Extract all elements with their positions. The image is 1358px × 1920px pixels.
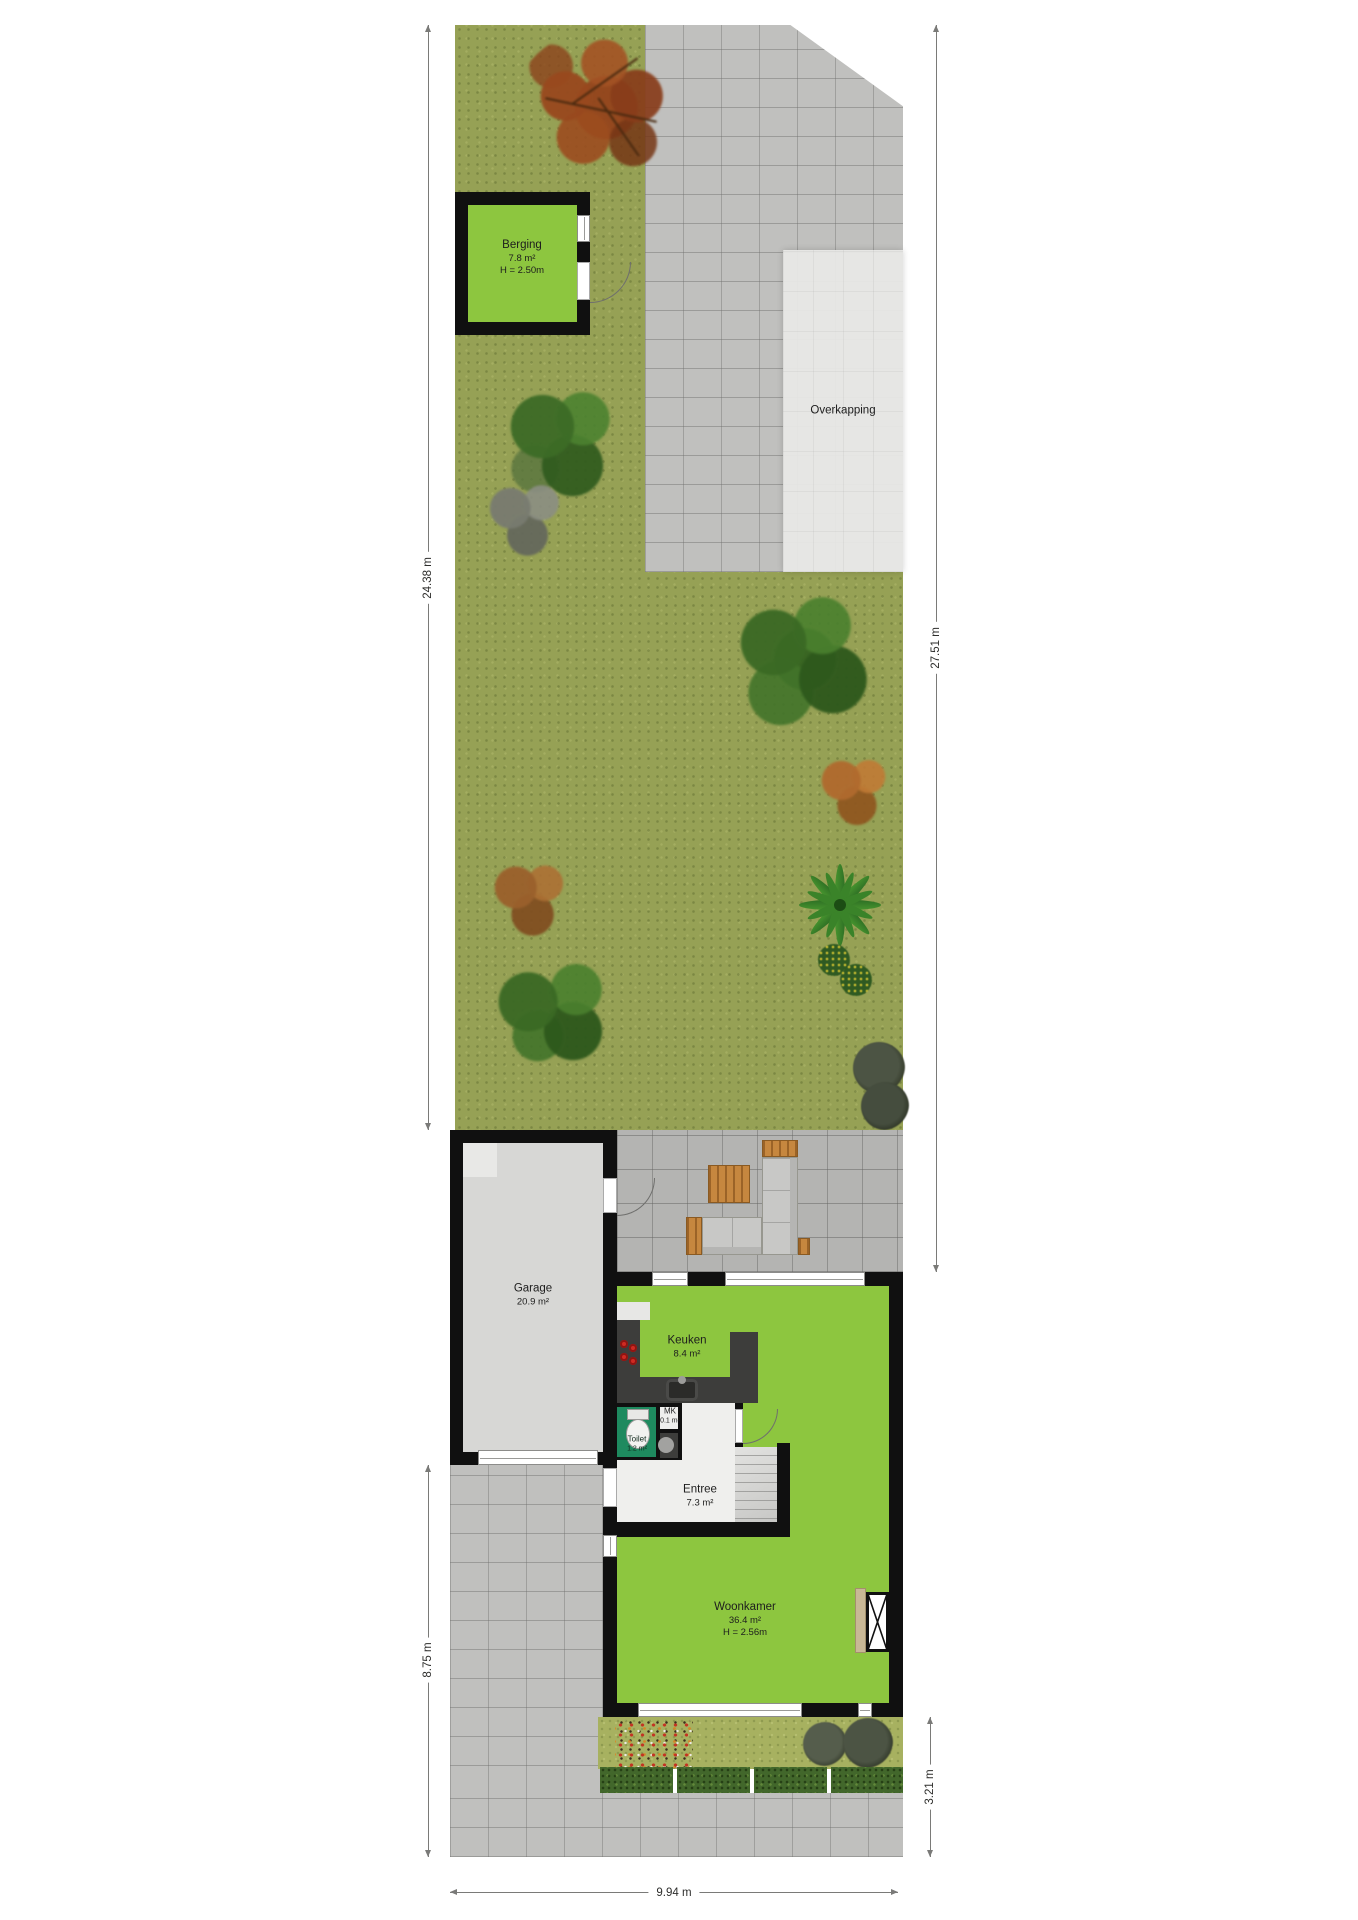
chimney-x-icon [866,1592,889,1652]
garden-bush-large [718,582,892,750]
mk-label: MK 0.1 m² [660,1406,680,1425]
berging-name: Berging [500,238,544,253]
keuken-name: Keuken [667,1333,706,1348]
garage-mat [463,1143,497,1177]
dimension-value: 8.75 m [419,1637,437,1682]
mk-name: MK [660,1406,680,1416]
arrow-up-icon [927,1717,933,1724]
berging-height: H = 2.50m [500,265,544,277]
garage-label: Garage 20.9 m² [514,1281,552,1308]
garden-rocks [470,465,585,573]
dimension-value: 27.51 m [927,622,945,674]
arrow-down-icon [927,1850,933,1857]
dark-bush [861,1082,909,1130]
woonkamer-area: 36.4 m² [714,1615,776,1627]
back-door-window [652,1272,688,1286]
kitchen-counter-left [617,1320,640,1403]
cooktop-burner [620,1353,628,1361]
cooktop-burner [629,1357,637,1365]
arrow-down-icon [425,1123,431,1130]
entree-bottom-wall [617,1522,790,1537]
keuken-area: 8.4 m² [667,1348,706,1360]
toilet-name: Toilet [627,1434,647,1444]
keuken-label: Keuken 8.4 m² [667,1333,706,1360]
side-window-small [603,1535,617,1557]
sofa-wood-end [686,1217,702,1255]
berging-area: 7.8 m² [500,253,544,265]
arrow-right-icon [891,1889,898,1895]
driveway-paving [450,1465,603,1795]
kitchen-counter-right [730,1332,758,1377]
entree-label: Entree 7.3 m² [683,1482,717,1509]
toilet-area: 1.2 m² [627,1445,647,1454]
overkapping-roof: Overkapping [783,250,903,572]
sofa-arm-horizontal [702,1217,762,1255]
arrow-up-icon [425,25,431,32]
front-bush [843,1718,893,1768]
arrow-down-icon [933,1265,939,1272]
woonkamer-label: Woonkamer 36.4 m² H = 2.56m [714,1600,776,1640]
garage-front-door [478,1450,598,1465]
entree-name: Entree [683,1482,717,1497]
entree-area: 7.3 m² [683,1497,717,1509]
hedge-segment [754,1767,827,1793]
berging-label: Berging 7.8 m² H = 2.50m [500,238,544,278]
berging-window [577,215,590,242]
tree-branch [598,97,640,156]
hedge-segment [677,1767,750,1793]
site-plan: Overkapping Berging 7.8 m² H = [0,0,1358,1920]
cooktop-burner [629,1344,637,1352]
flower-patch [615,1720,693,1768]
yellow-bushlet [840,964,872,996]
arrow-up-icon [425,1465,431,1472]
front-hedge [600,1767,903,1793]
garden-bush-green-low [477,953,637,1075]
back-window-large [725,1272,865,1286]
garage-name: Garage [514,1281,552,1296]
garden-bush-brown [478,848,583,952]
entree-floor-upper [682,1403,735,1462]
basin-nook [660,1433,678,1458]
sofa-arm-vertical [762,1157,798,1255]
garage-terrace-door [603,1178,617,1213]
front-window-large [638,1703,802,1717]
palm-plant [795,857,885,953]
hand-basin [658,1437,674,1453]
hedge-segment [600,1767,673,1793]
kitchen-counter-bottom [640,1377,758,1403]
sidewalk-paving [450,1793,903,1857]
front-window-small [858,1703,872,1717]
toilet-label: Toilet 1.2 m² [627,1434,647,1453]
garden-bush-orange [806,744,904,840]
chimney-mantel [855,1588,866,1653]
arrow-up-icon [933,25,939,32]
mk-area: 0.1 m² [660,1417,680,1426]
sink-faucet [678,1376,686,1384]
woonkamer-name: Woonkamer [714,1600,776,1615]
arrow-left-icon [450,1889,457,1895]
front-bush [803,1722,847,1766]
dimension-value: 9.94 m [648,1885,699,1901]
staircase [735,1447,777,1527]
sofa-wood-corner [798,1238,810,1255]
entree-livingroom-door [735,1409,743,1443]
chimney-flue [866,1592,889,1652]
hedge-segment [831,1767,903,1793]
kitchen-worktop-corner [617,1302,650,1320]
palm-center [834,899,846,911]
arrow-down-icon [425,1850,431,1857]
dimension-value: 3.21 m [921,1764,939,1809]
front-door [603,1468,617,1507]
kitchen-sink [666,1379,698,1401]
overkapping-label: Overkapping [810,404,875,419]
cooktop-burner [620,1340,628,1348]
tree-branch [572,57,639,105]
dimension-value: 24.38 m [419,552,437,604]
sofa-wood-end [762,1140,798,1157]
berging-door [577,262,590,300]
woonkamer-height: H = 2.56m [714,1627,776,1639]
terrace-table [708,1165,750,1203]
garage-area: 20.9 m² [514,1296,552,1308]
